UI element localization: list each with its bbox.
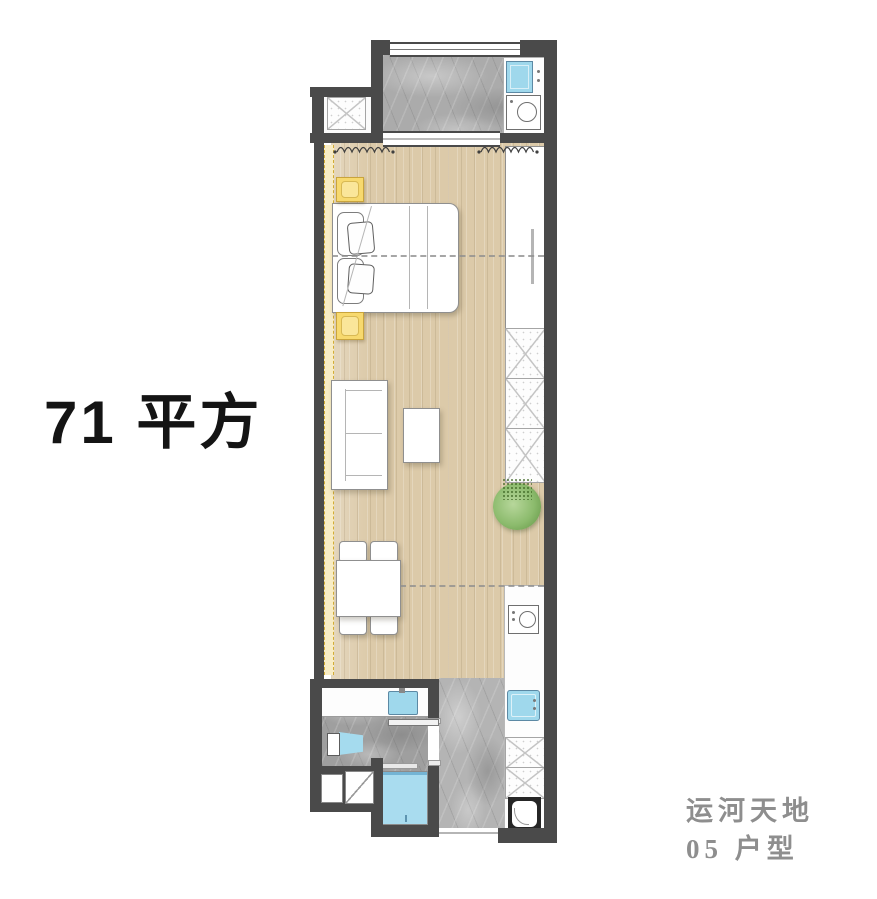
burner-icon: [519, 611, 536, 628]
wall-segment: [371, 825, 439, 837]
dining-table: [336, 560, 401, 617]
wall-segment: [371, 54, 383, 143]
wall-segment: [310, 133, 383, 143]
sink-basin: [510, 65, 529, 89]
drain-icon: [405, 815, 407, 822]
balcony-window: [390, 42, 520, 57]
knob-dot: [512, 611, 515, 614]
wall-segment: [500, 133, 544, 143]
coffee-table: [403, 408, 440, 463]
sofa-armrest-line: [345, 475, 382, 476]
laundry-sink: [506, 61, 533, 93]
project-label-block: 运河天地 05 户型: [686, 792, 814, 868]
sofa-cushion-line: [345, 433, 382, 434]
wardrobe: [505, 146, 546, 330]
faucet-dot: [533, 699, 536, 702]
knob-dot: [512, 618, 515, 621]
floorplan-page: 71 平方 运河天地 05 户型: [0, 0, 877, 899]
storage-cabinet: [505, 428, 546, 483]
kitchen-sink: [507, 690, 540, 721]
projection-dash-line: [332, 255, 544, 257]
entry-opening: [439, 828, 498, 843]
storage-cabinet: [505, 328, 546, 380]
nightstand-top: [336, 177, 364, 202]
sink-basin: [511, 694, 536, 717]
sofa-armrest-line: [345, 390, 382, 391]
kitchen-cabinet: [505, 737, 545, 769]
faucet-dot: [537, 79, 540, 82]
wall-bathroom-top: [310, 679, 428, 688]
appliance-curve: [514, 808, 529, 825]
washing-machine: [506, 95, 541, 130]
storage-cabinet: [505, 378, 546, 430]
wall-segment: [371, 40, 390, 55]
shower: [383, 772, 427, 824]
ac-platform: [327, 97, 366, 130]
unit-label: 05 户型: [686, 830, 814, 868]
plant-foliage: [502, 478, 532, 500]
washer-drum-icon: [517, 102, 537, 122]
bath-niche: [321, 774, 343, 803]
living-room-window: [383, 131, 500, 147]
projection-dash-line: [400, 585, 544, 587]
cooktop: [508, 605, 539, 634]
kitchen-cabinet: [505, 767, 545, 799]
wall-left: [314, 143, 324, 679]
sofa: [331, 380, 388, 490]
vanity-sink: [388, 691, 418, 715]
toilet-bowl: [339, 732, 363, 755]
water-heater-top: [512, 801, 537, 827]
faucet-icon: [399, 688, 405, 693]
washer-knob: [510, 100, 513, 103]
pillow: [347, 263, 375, 295]
door-jamb: [428, 760, 441, 766]
wall-segment: [498, 828, 557, 843]
wall-segment: [428, 679, 439, 722]
entry-door: [439, 832, 498, 834]
area-label: 71 平方: [44, 390, 262, 456]
duvet-line: [409, 206, 410, 309]
nightstand-bottom: [336, 312, 364, 340]
sofa-back-line: [345, 389, 346, 481]
potted-plant: [493, 483, 541, 530]
water-heater: [508, 797, 541, 831]
faucet-dot: [533, 707, 536, 710]
sliding-door: [388, 719, 439, 726]
shower-door: [345, 771, 374, 804]
project-name: 运河天地: [686, 792, 814, 830]
duvet-line: [427, 206, 428, 309]
hallway-floor: [439, 678, 504, 833]
double-bed: [332, 203, 459, 313]
toilet-tank: [327, 733, 340, 756]
faucet-dot: [537, 70, 540, 73]
wall-right: [544, 40, 557, 843]
